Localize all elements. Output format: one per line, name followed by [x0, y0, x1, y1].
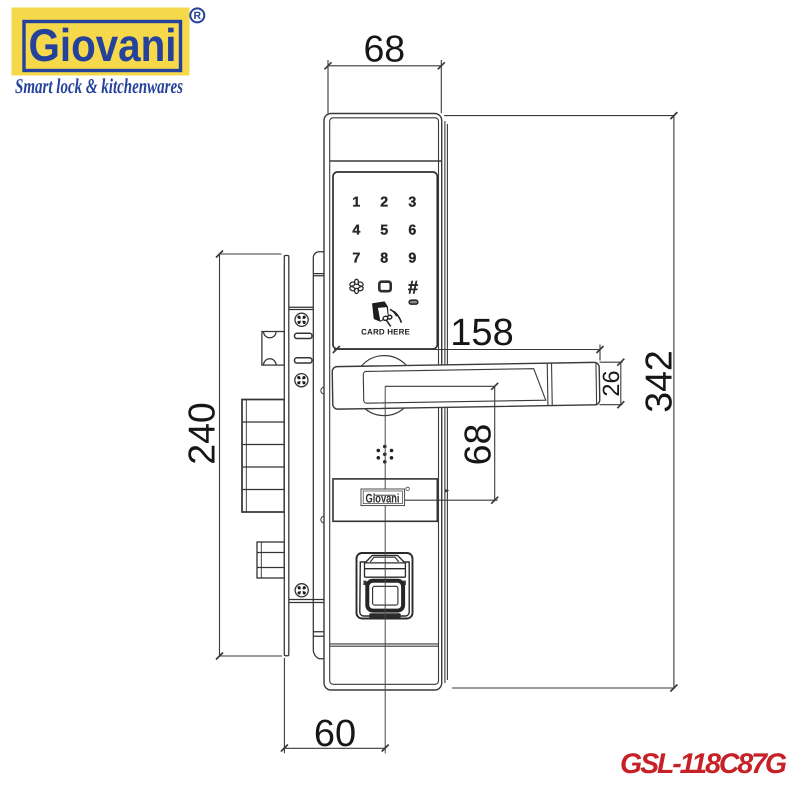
svg-text:CARD HERE: CARD HERE — [361, 328, 410, 337]
svg-text:8: 8 — [380, 250, 388, 266]
svg-text:GSL-118C87G: GSL-118C87G — [620, 748, 787, 780]
svg-text:26: 26 — [598, 370, 624, 396]
svg-text:158: 158 — [450, 312, 513, 354]
svg-text:342: 342 — [637, 350, 679, 413]
svg-text:#: # — [408, 276, 418, 297]
svg-text:6: 6 — [408, 222, 416, 238]
svg-text:Giovani: Giovani — [29, 19, 177, 71]
svg-text:1: 1 — [352, 195, 360, 211]
svg-text:68: 68 — [457, 424, 499, 466]
svg-text:9: 9 — [408, 250, 416, 266]
svg-text:2: 2 — [380, 195, 388, 211]
svg-text:Smart lock & kitchenwares: Smart lock & kitchenwares — [15, 74, 183, 98]
svg-text:7: 7 — [352, 250, 360, 266]
svg-text:R: R — [194, 10, 202, 22]
svg-text:68: 68 — [363, 28, 405, 70]
svg-text:Giovani: Giovani — [366, 491, 400, 505]
svg-text:5: 5 — [380, 222, 388, 238]
svg-text:4: 4 — [352, 222, 360, 238]
svg-text:60: 60 — [314, 713, 356, 755]
svg-text:3: 3 — [408, 195, 416, 211]
svg-text:240: 240 — [181, 402, 223, 465]
